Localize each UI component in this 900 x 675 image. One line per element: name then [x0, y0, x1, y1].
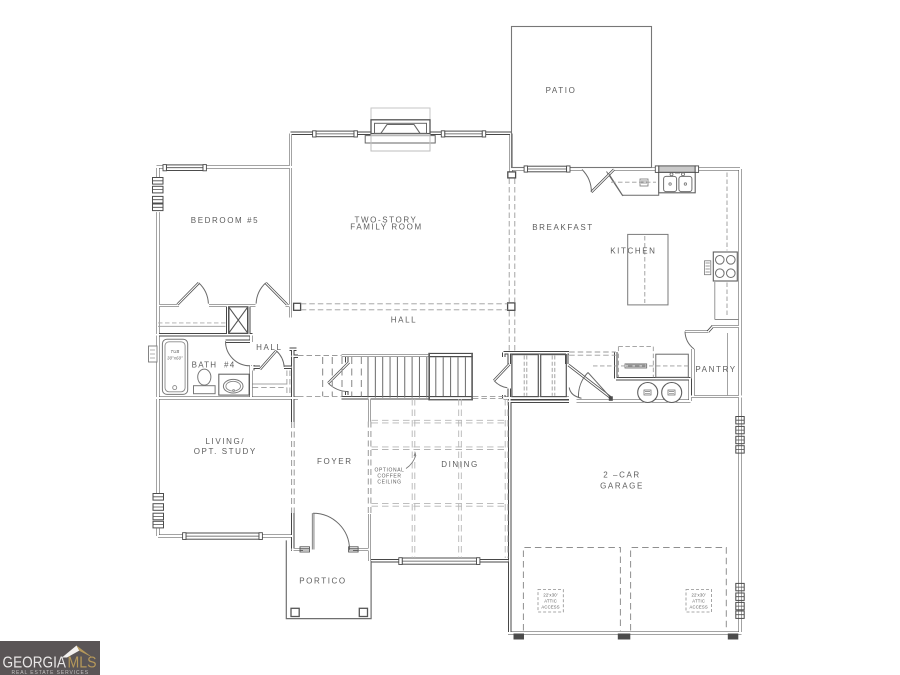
svg-text:GARAGE: GARAGE — [600, 482, 644, 491]
svg-text:CEILING: CEILING — [377, 480, 401, 486]
svg-text:BEDROOM #5: BEDROOM #5 — [191, 216, 259, 225]
svg-text:BREAKFAST: BREAKFAST — [532, 223, 594, 232]
svg-text:LIVING/: LIVING/ — [205, 437, 245, 446]
svg-text:ATTIC: ATTIC — [544, 599, 557, 604]
svg-text:2 –CAR: 2 –CAR — [603, 471, 641, 480]
svg-text:ATTIC: ATTIC — [692, 599, 705, 604]
svg-text:BATH #4: BATH #4 — [192, 361, 236, 370]
svg-text:30"x60": 30"x60" — [167, 356, 183, 361]
svg-text:TUB: TUB — [171, 349, 180, 354]
svg-text:OPT. STUDY: OPT. STUDY — [194, 447, 257, 456]
svg-text:PATIO: PATIO — [546, 86, 577, 95]
svg-text:PANTRY: PANTRY — [695, 365, 736, 374]
svg-text:ACCESS: ACCESS — [541, 605, 559, 610]
svg-text:HALL: HALL — [256, 343, 282, 352]
svg-text:REAL ESTATE SERVICES: REAL ESTATE SERVICES — [12, 670, 90, 675]
svg-text:KITCHEN: KITCHEN — [610, 247, 656, 256]
svg-text:FAMILY ROOM: FAMILY ROOM — [350, 223, 422, 232]
svg-text:22'x30': 22'x30' — [691, 593, 705, 598]
svg-text:22'x30': 22'x30' — [543, 593, 557, 598]
svg-text:HALL: HALL — [391, 315, 417, 324]
svg-text:FOYER: FOYER — [317, 457, 353, 466]
svg-text:ACCESS: ACCESS — [689, 605, 707, 610]
svg-text:MLS: MLS — [68, 655, 97, 672]
svg-text:GEORGIA: GEORGIA — [3, 655, 67, 672]
svg-text:PORTICO: PORTICO — [299, 577, 347, 586]
svg-text:DINING: DINING — [441, 460, 479, 469]
